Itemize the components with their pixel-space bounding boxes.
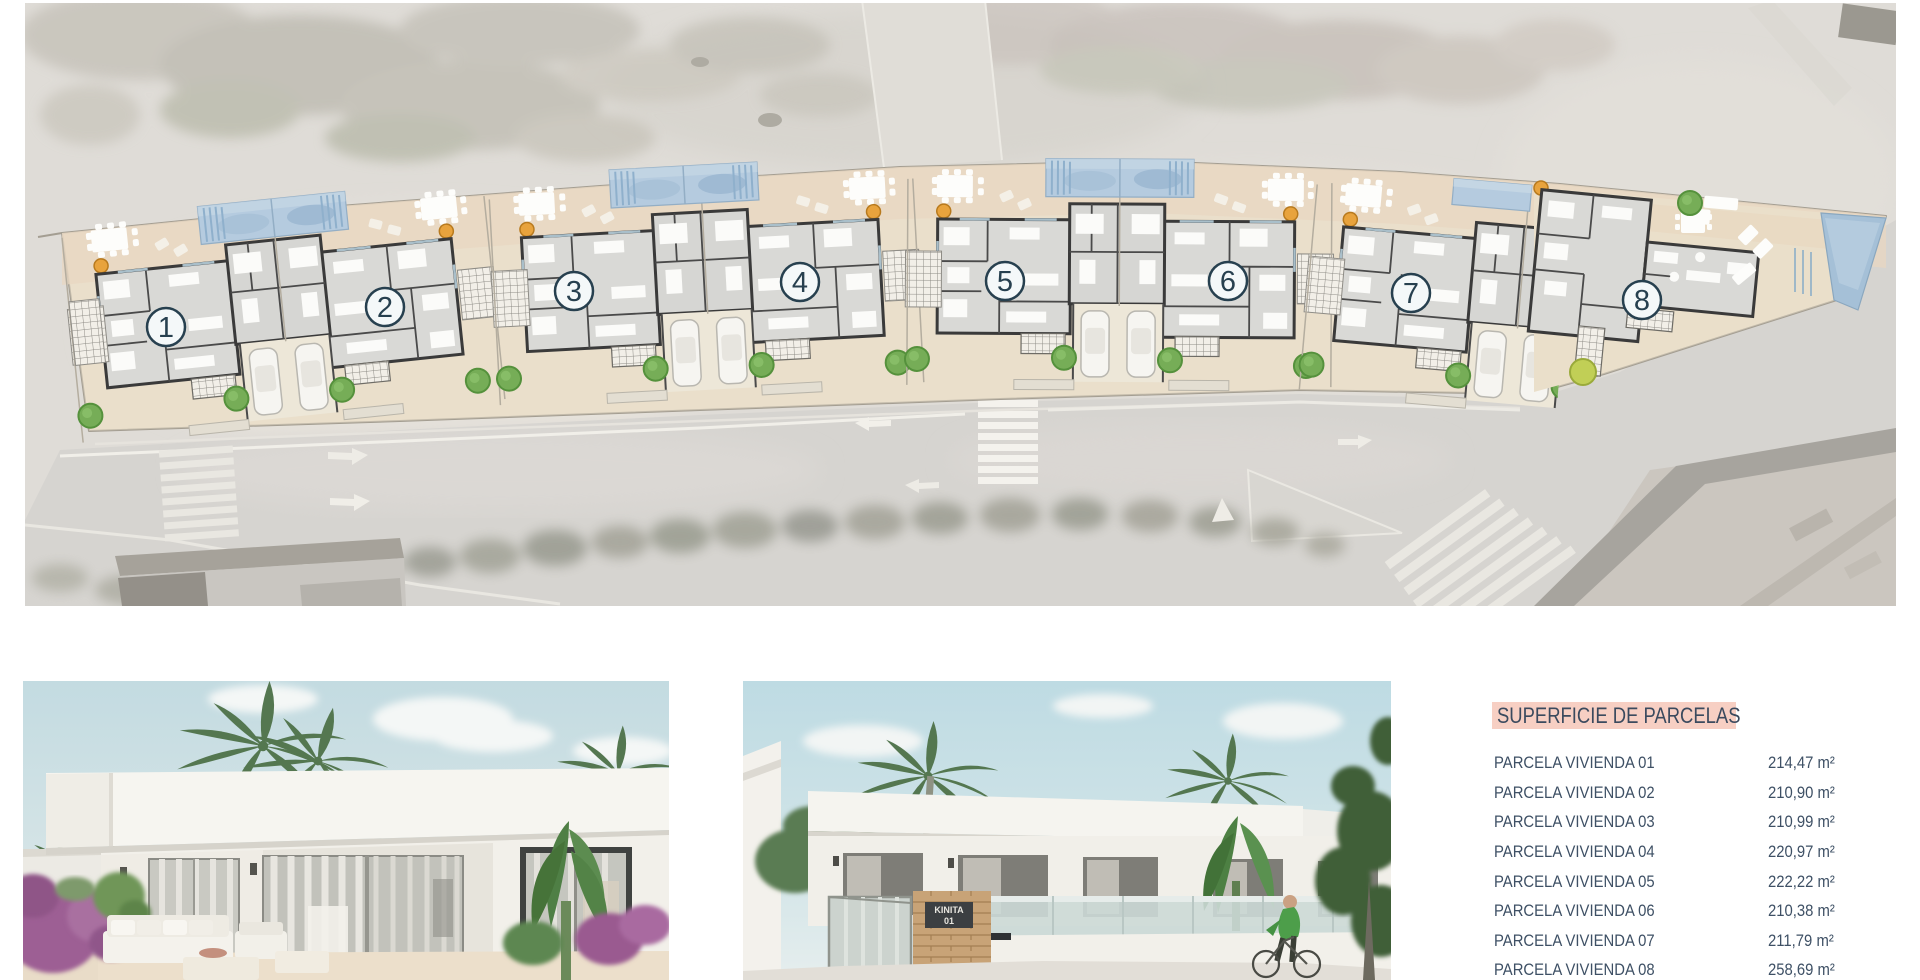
svg-text:6: 6 bbox=[1220, 266, 1236, 298]
svg-text:2: 2 bbox=[377, 292, 393, 324]
svg-text:7: 7 bbox=[1403, 278, 1419, 310]
svg-text:3: 3 bbox=[566, 276, 582, 308]
svg-text:KINITA: KINITA bbox=[934, 905, 964, 915]
svg-text:1: 1 bbox=[158, 312, 174, 344]
svg-text:4: 4 bbox=[792, 267, 808, 299]
svg-text:5: 5 bbox=[997, 266, 1013, 298]
svg-text:01: 01 bbox=[944, 916, 954, 926]
svg-text:8: 8 bbox=[1634, 285, 1650, 317]
